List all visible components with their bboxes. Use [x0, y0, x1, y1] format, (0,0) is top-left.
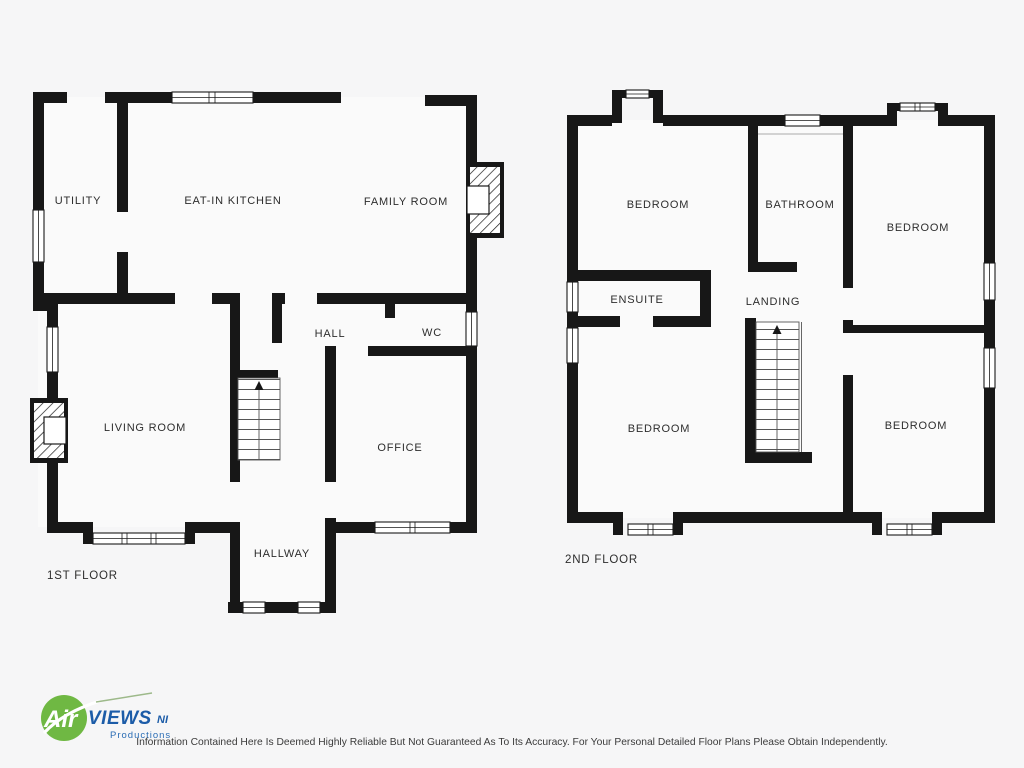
floor1-plan: UTILITY EAT-IN KITCHEN FAMILY ROOM HALL …	[30, 92, 504, 613]
logo-views-text: VIEWS	[88, 708, 152, 729]
window	[626, 90, 649, 98]
window	[785, 115, 820, 126]
floor1-hallway-footprint	[233, 520, 331, 608]
floor1-label-office: OFFICE	[377, 442, 422, 454]
floor2-label-landing: LANDING	[746, 296, 801, 308]
floor2-label-bedroom-tl: BEDROOM	[627, 199, 689, 211]
airviews-logo: Air VIEWS NI Productions	[41, 693, 171, 741]
floor1-label-utility: UTILITY	[55, 195, 102, 207]
floor1-label-family-room: FAMILY ROOM	[364, 196, 448, 208]
window	[984, 263, 995, 300]
floor2-plan: BEDROOM BATHROOM BEDROOM ENSUITE LANDING…	[565, 90, 995, 566]
family-room-fireplace	[466, 162, 504, 238]
floor1-label-hallway: HALLWAY	[254, 548, 310, 560]
window	[887, 524, 932, 535]
window	[93, 533, 185, 544]
floor1-label-living-room: LIVING ROOM	[104, 422, 186, 434]
window	[900, 103, 935, 111]
floor1-label-kitchen: EAT-IN KITCHEN	[184, 195, 281, 207]
floor1-label-hall: HALL	[315, 328, 346, 340]
window	[375, 522, 450, 533]
window	[466, 312, 477, 346]
disclaimer-text: Information Contained Here Is Deemed Hig…	[136, 737, 888, 748]
floor1-footprint	[38, 97, 472, 527]
floorplan-page: UTILITY EAT-IN KITCHEN FAMILY ROOM HALL …	[0, 0, 1024, 768]
floor2-label-bathroom: BATHROOM	[765, 199, 834, 211]
floor2-label-bedroom-br: BEDROOM	[885, 420, 947, 432]
logo-swoosh-tail-icon	[96, 693, 152, 702]
window	[984, 348, 995, 388]
window	[298, 602, 320, 613]
logo-ni-text: NI	[157, 714, 169, 726]
floorplan-drawing: UTILITY EAT-IN KITCHEN FAMILY ROOM HALL …	[0, 0, 1024, 768]
floor1-title: 1ST FLOOR	[47, 570, 118, 582]
logo-air-text: Air	[43, 706, 79, 733]
window	[567, 282, 578, 312]
floor2-label-bedroom-tr: BEDROOM	[887, 222, 949, 234]
floor2-title: 2ND FLOOR	[565, 554, 638, 566]
window	[33, 210, 44, 262]
floor1-staircase	[238, 378, 280, 460]
floor1-label-wc: WC	[422, 327, 442, 339]
window	[567, 328, 578, 363]
window	[47, 327, 58, 372]
floor2-staircase	[756, 322, 802, 452]
window	[243, 602, 265, 613]
floor2-label-bedroom-bl: BEDROOM	[628, 423, 690, 435]
window	[172, 92, 253, 103]
floor2-label-ensuite: ENSUITE	[610, 294, 663, 306]
window	[628, 524, 673, 535]
living-room-fireplace	[30, 398, 68, 463]
